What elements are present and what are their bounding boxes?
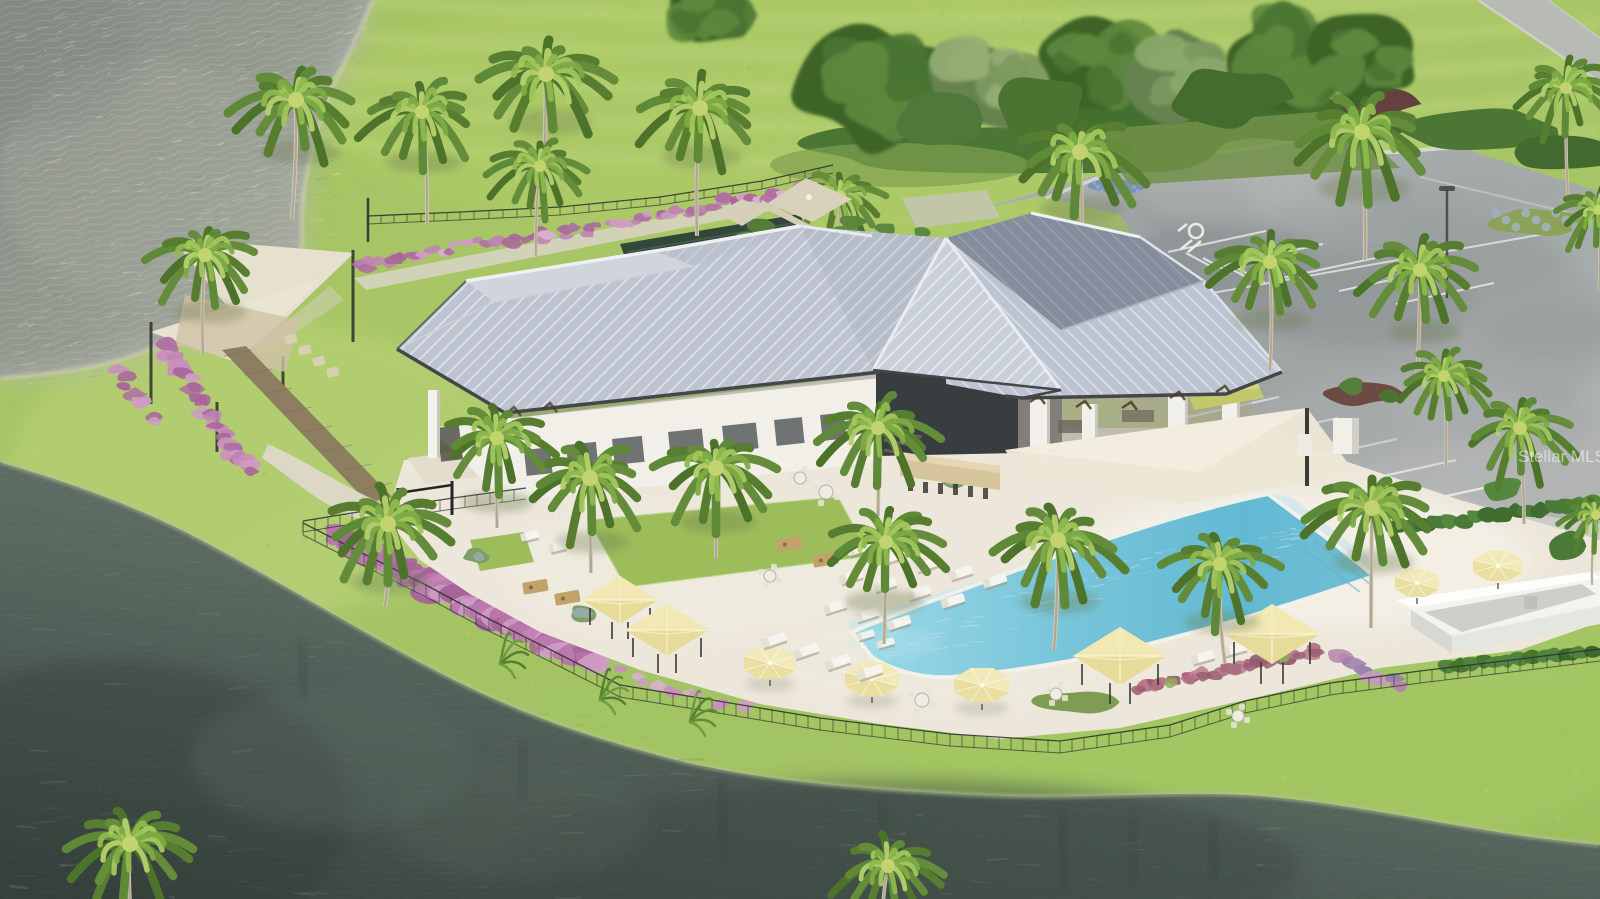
svg-text:Stellar MLS: Stellar MLS bbox=[1518, 447, 1600, 466]
